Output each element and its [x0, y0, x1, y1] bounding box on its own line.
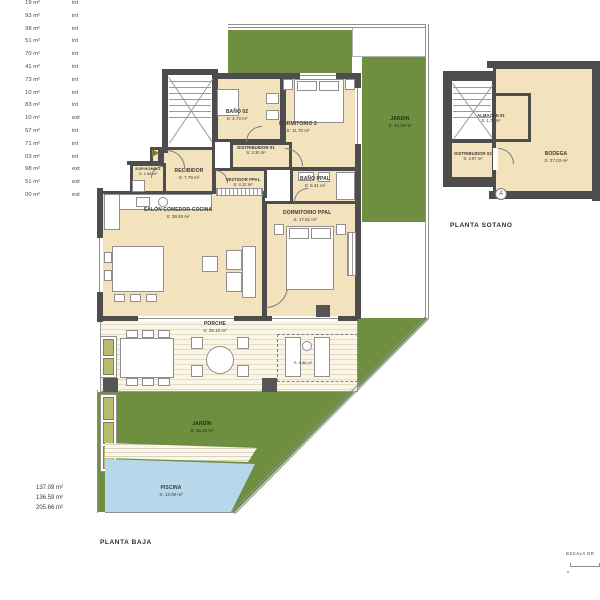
- kitchen-sink: [158, 197, 168, 207]
- chair: [130, 294, 141, 302]
- table-row: 19 m²int: [0, 0, 100, 13]
- round-table: [206, 346, 234, 374]
- wall: [592, 61, 600, 201]
- table-row: 71 m²int: [0, 141, 100, 154]
- sliding-door-line: [138, 318, 234, 319]
- room-label-salon: SALÓN COMEDOR-COCINA S: 39.93 m²: [134, 207, 222, 219]
- entry-arrow-icon: [152, 149, 159, 157]
- table-row: 03 m²int: [0, 154, 100, 167]
- window: [97, 238, 103, 292]
- sink: [266, 110, 279, 120]
- room-label-banoppal: BAÑO PPAL S: 5.41 m²: [293, 176, 337, 188]
- wardrobe: [216, 188, 263, 196]
- plot-boundary-bottom: [105, 512, 235, 513]
- table-row: 51 m²ext: [0, 179, 100, 192]
- room-label-recibidor: RECIBIDOR S: 7.78 m²: [164, 168, 214, 180]
- scale-bar-tick: [570, 563, 571, 567]
- wardrobe: [347, 232, 356, 276]
- chair: [237, 365, 249, 377]
- room-label-porche: PORCHE S: 38.10 m²: [193, 321, 237, 333]
- chair: [126, 330, 138, 338]
- planta-sotano-title: PLANTA SOTANO: [450, 222, 513, 229]
- table-row: 00 m²ext: [0, 192, 100, 205]
- nightstand: [336, 224, 346, 235]
- room-label-distribuidor01: DISTRIBUIDOR 01 S: 3.30 m²: [232, 145, 280, 156]
- appliance: [132, 180, 145, 192]
- sofa-back: [242, 246, 256, 298]
- chair: [158, 378, 170, 386]
- table-row: 98 m²ext: [0, 166, 100, 179]
- scale-bar-label: ESCALA GR: [566, 551, 600, 556]
- sofa-seat: [226, 250, 242, 270]
- sofa-seat: [226, 272, 242, 292]
- room-label-esp: ESP.HOMB.2 S: 1.88 m²: [128, 166, 168, 176]
- toilet: [266, 93, 279, 104]
- chair: [142, 330, 154, 338]
- table-row: 51 m²int: [0, 38, 100, 51]
- wall: [487, 61, 598, 68]
- garden-top: [228, 30, 352, 76]
- room-label-vestidor: VESTIDOR PPAL S: 4.12 m²: [221, 177, 265, 188]
- plot-boundary-top: [228, 27, 426, 28]
- nightstand: [283, 79, 293, 90]
- room-label-jardin: JARDÍN S: 46.22 m²: [180, 421, 224, 433]
- room-label-dormppal: DORMITORIO PPAL S: 17.51 m²: [283, 210, 327, 222]
- room-label-almacen: ALMACÉN 01 S: 1.77 m²: [468, 113, 514, 124]
- plot-boundary-right: [425, 24, 426, 318]
- total-value: 137.09 m²: [13, 483, 63, 493]
- table-row: 41 m²int: [0, 64, 100, 77]
- section-marker-a: A: [495, 188, 507, 200]
- window-line: [300, 75, 336, 76]
- wall: [162, 69, 218, 75]
- stair-treads: [169, 76, 211, 122]
- shower: [336, 172, 355, 200]
- kitchen-hob: [136, 197, 150, 207]
- total-value: 205.66 m²: [13, 503, 63, 513]
- room-label-jardin-lateral: JARDIN S: 34.29 m²: [378, 116, 422, 128]
- chair: [142, 378, 154, 386]
- room-label-distribuidor02: DISTRIBUIDOR 02 S: 2.87 m²: [449, 151, 497, 162]
- porch-zone-label: S: 8.88 m²: [281, 360, 325, 365]
- side-table: [302, 341, 312, 351]
- scale-bar-zero: 0: [567, 569, 569, 574]
- plot-boundary-left: [97, 390, 98, 513]
- scale-bar-line: [570, 566, 600, 567]
- window-line: [357, 88, 358, 144]
- garden-side: [362, 57, 425, 222]
- area-totals: 137.09 m² 136.59 m² 205.66 m²: [13, 483, 63, 513]
- room-label-piscina: PISCINA S: 13.00 m²: [149, 485, 193, 497]
- planter: [100, 336, 117, 378]
- chair: [146, 294, 157, 302]
- pillar: [103, 378, 118, 392]
- pillow: [289, 228, 309, 239]
- chair: [114, 294, 125, 302]
- table-row: 70 m²int: [0, 51, 100, 64]
- planta-baja-title: PLANTA BAJA: [100, 539, 152, 546]
- pillow: [297, 81, 317, 91]
- pillow: [311, 228, 331, 239]
- wall: [443, 71, 450, 187]
- table-row: 10 m²ext: [0, 115, 100, 128]
- kitchen-column: [104, 194, 120, 230]
- wall: [162, 69, 168, 153]
- room-label-dormitorio2: DORMITORIO 2 S: 11.70 m²: [276, 121, 320, 133]
- window: [355, 88, 361, 144]
- sliding-door-line: [272, 318, 338, 319]
- coffee-table: [202, 256, 218, 272]
- plot-boundary-right: [428, 24, 429, 318]
- table-row: 57 m²int: [0, 128, 100, 141]
- wall: [443, 71, 495, 78]
- chair: [237, 337, 249, 349]
- table-row: 98 m²int: [0, 26, 100, 39]
- sun-lounger: [314, 337, 330, 377]
- floorplan-canvas: 19 m²int 93 m²int 98 m²int 51 m²int 70 m…: [0, 0, 600, 600]
- table-row: 73 m²int: [0, 77, 100, 90]
- chair: [191, 337, 203, 349]
- room-label-bodega: BODEGA S: 37.03 m²: [533, 151, 579, 163]
- table-row: 93 m²int: [0, 13, 100, 26]
- entry-patio: [352, 27, 426, 57]
- room-label-bano02: BAÑO 02 S: 4.73 m²: [215, 109, 259, 121]
- chair: [104, 252, 112, 263]
- nightstand: [345, 79, 355, 90]
- dining-table: [112, 246, 164, 292]
- chair: [126, 378, 138, 386]
- porch-table: [120, 338, 174, 378]
- area-table: 19 m²int 93 m²int 98 m²int 51 m²int 70 m…: [0, 0, 100, 205]
- plot-boundary-top: [228, 24, 426, 25]
- table-row: 10 m²int: [0, 90, 100, 103]
- total-value: 136.59 m²: [13, 493, 63, 503]
- nightstand: [274, 224, 284, 235]
- pillar: [262, 378, 277, 392]
- window-line: [99, 238, 100, 292]
- chair: [191, 365, 203, 377]
- wall: [127, 161, 164, 165]
- sun-lounger: [285, 337, 301, 377]
- pillar: [316, 305, 330, 317]
- wall: [443, 180, 496, 187]
- chair: [158, 330, 170, 338]
- pillow: [319, 81, 339, 91]
- table-row: 83 m²int: [0, 102, 100, 115]
- chair: [104, 270, 112, 281]
